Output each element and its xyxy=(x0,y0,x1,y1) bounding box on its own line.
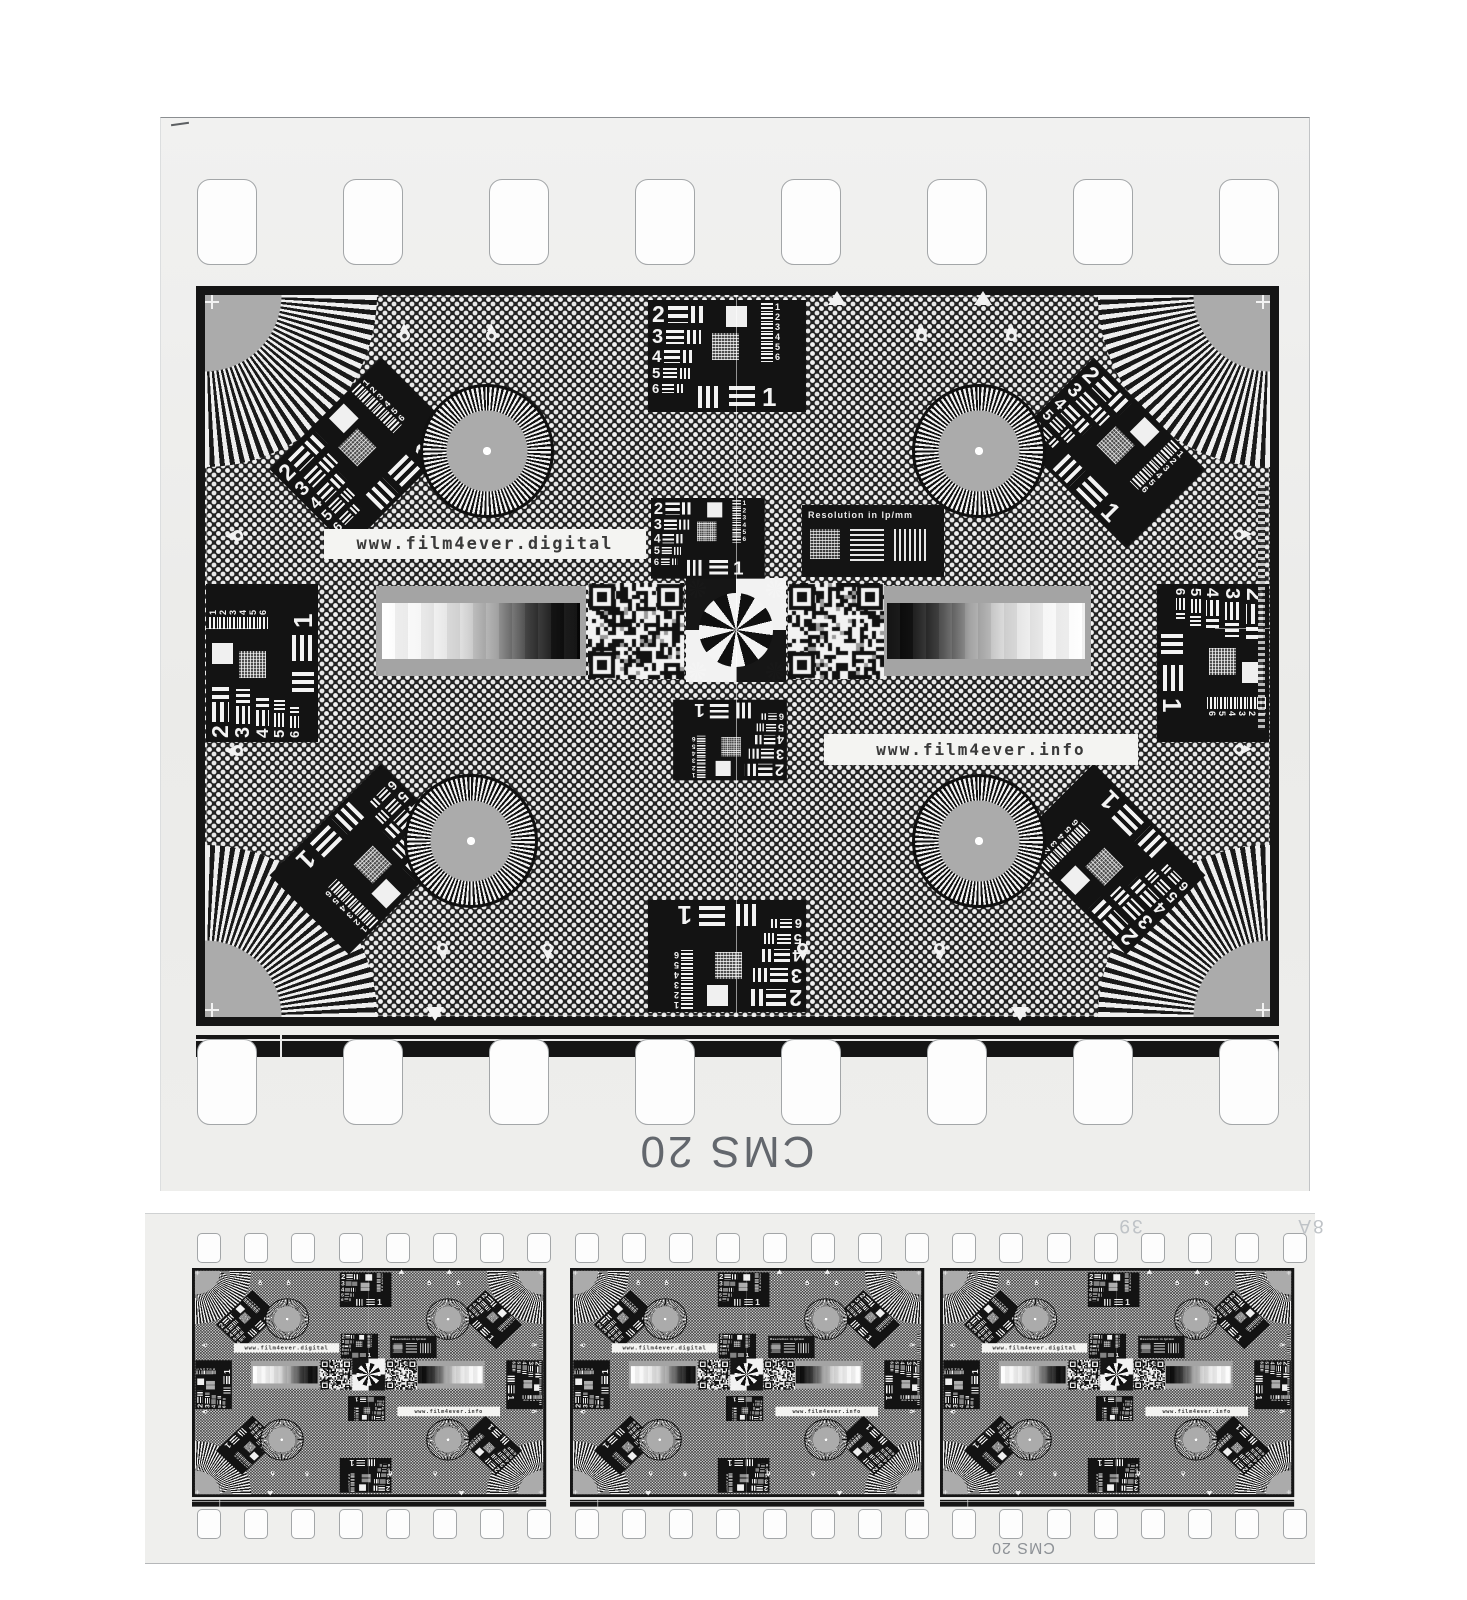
line-pattern xyxy=(1102,1274,1107,1279)
resolution-row-small: 5 xyxy=(1102,1409,1106,1411)
resolution-number: 5 xyxy=(778,722,784,733)
teardrop-marker-right xyxy=(1234,529,1252,541)
resolution-number: 4 xyxy=(1130,1407,1132,1411)
resolution-rows: 23456 xyxy=(1089,1273,1107,1301)
line-pattern xyxy=(1093,1293,1098,1296)
line-pattern xyxy=(996,1426,1000,1430)
line-pattern xyxy=(749,1416,753,1420)
line-pattern xyxy=(377,1289,381,1292)
mini-resolution-block: 234561234561 xyxy=(726,1396,763,1421)
line-pattern xyxy=(1219,1315,1223,1319)
qr-canvas xyxy=(698,1360,729,1390)
resolution-row-small: 5 xyxy=(1217,697,1226,716)
resolution-rows-small: 123456 xyxy=(674,950,693,1009)
resolution-number-small: 5 xyxy=(732,1409,733,1411)
line-pattern xyxy=(259,617,268,629)
line-pattern xyxy=(351,1335,355,1339)
line-pattern xyxy=(379,1400,382,1402)
sprocket-hole xyxy=(952,1509,976,1539)
resolution-row-small: 5 xyxy=(249,610,258,629)
resolution-number: 5 xyxy=(760,1403,762,1406)
resolution-unit-label: Resolution in lp/mm xyxy=(808,510,938,520)
sprocket-hole xyxy=(999,1509,1023,1539)
edge-arrow-bottom xyxy=(426,1007,444,1021)
line-pattern xyxy=(728,1340,731,1343)
qr-code-right xyxy=(386,1360,417,1390)
line-pattern xyxy=(900,1365,904,1370)
url-bar-info: www.film4ever.info xyxy=(775,1407,878,1417)
line-pattern xyxy=(732,1274,737,1279)
line-pattern xyxy=(729,1489,733,1492)
teardrop-marker-top xyxy=(1035,1279,1039,1285)
line-pattern xyxy=(351,1474,355,1477)
resolution-row-small: 5 xyxy=(348,1477,354,1480)
line-pattern xyxy=(356,1407,359,1409)
resolution-number-small: 6 xyxy=(775,353,780,362)
line-pattern xyxy=(1217,697,1226,709)
resolution-number-small: 5 xyxy=(348,1477,350,1480)
line-pattern xyxy=(886,1385,893,1393)
line-pattern xyxy=(757,1464,760,1467)
resolution-number-small: 5 xyxy=(1102,1409,1103,1411)
resolution-row-small: 2 xyxy=(674,990,693,999)
line-pattern xyxy=(218,1400,222,1404)
line-pattern xyxy=(961,1370,964,1374)
resolution-row-small: 2 xyxy=(732,1416,736,1418)
line-pattern xyxy=(663,534,675,543)
line-pattern xyxy=(236,706,250,724)
line-pattern xyxy=(229,1434,240,1445)
resolution-number-small: 1 xyxy=(348,1489,350,1492)
resolution-number: 3 xyxy=(1276,1361,1283,1364)
resolution-number: 6 xyxy=(654,557,659,566)
resolution-number: 2 xyxy=(196,1404,204,1408)
resolution-number-small: 6 xyxy=(674,950,679,959)
edge-arrow-bottom xyxy=(1011,1007,1029,1021)
resolution-row: 5 xyxy=(719,1293,737,1298)
sprocket-hole xyxy=(339,1233,363,1263)
line-pattern xyxy=(346,1282,352,1286)
resolution-row-small: 6 xyxy=(523,1395,526,1401)
resolution-row-small: 2 xyxy=(536,1395,539,1401)
line-pattern xyxy=(738,1397,744,1402)
sprocket-hole xyxy=(1235,1233,1259,1263)
line-pattern xyxy=(759,949,771,961)
white-reference-square xyxy=(1061,865,1091,895)
line-pattern xyxy=(380,1479,386,1483)
teardrop-marker-top xyxy=(916,323,928,341)
resolution-number-small: 4 xyxy=(732,1412,733,1414)
resolution-row: 3 xyxy=(1222,588,1242,643)
resolution-bottom-group: 1 xyxy=(727,1459,753,1466)
resolution-row: 4 xyxy=(1204,588,1221,643)
resolution-bottom-group: 1 xyxy=(971,1369,978,1393)
line-pattern xyxy=(591,1370,594,1374)
sprocket-hole xyxy=(811,1233,835,1263)
resolution-number: 4 xyxy=(900,1361,906,1364)
line-pattern xyxy=(697,757,706,763)
test-chart: 2345612345612345612345612345612345612345… xyxy=(192,1268,546,1497)
sprocket-hole xyxy=(763,1233,787,1263)
line-pattern xyxy=(1108,1397,1114,1402)
resolution-rows-small: 123456 xyxy=(497,1316,515,1333)
siemens-star-circle-4 xyxy=(804,1419,848,1460)
line-pattern xyxy=(734,1412,737,1414)
line-pattern xyxy=(1104,1299,1112,1306)
line-pattern xyxy=(590,1394,594,1398)
sprocket-hole xyxy=(197,1509,221,1539)
gear-flower xyxy=(378,1384,384,1390)
resolution-number-small: 2 xyxy=(726,1486,728,1489)
resolution-row: 3 xyxy=(654,517,693,531)
line-pattern xyxy=(218,1396,222,1399)
resolution-number-small: 5 xyxy=(354,1409,355,1411)
fine-pattern-square xyxy=(364,1408,370,1414)
resolution-number-small: 6 xyxy=(1249,1330,1252,1333)
resolution-unit-box: Resolution in lp/mm xyxy=(390,1336,436,1358)
sprocket-hole xyxy=(1219,179,1279,265)
white-reference-square xyxy=(740,1415,745,1420)
sprocket-hole xyxy=(1219,1039,1279,1125)
resolution-number-small: 2 xyxy=(219,610,228,615)
line-pattern xyxy=(764,933,774,944)
sprocket-hole xyxy=(1141,1233,1165,1263)
resolution-row-small: 3 xyxy=(732,1414,736,1416)
line-pattern xyxy=(723,1293,728,1296)
edge-arrow-top xyxy=(777,1270,783,1274)
frame-bottom-bar xyxy=(192,1500,546,1507)
resolution-number-small: 4 xyxy=(674,970,679,979)
line-pattern xyxy=(1108,1353,1114,1358)
line-pattern xyxy=(697,750,706,756)
line-pattern xyxy=(356,1414,359,1416)
resolution-number: 6 xyxy=(383,1400,385,1403)
line-pattern xyxy=(755,1289,759,1292)
qr-code-right xyxy=(788,583,884,679)
resolution-big-number: 1 xyxy=(1125,1299,1130,1306)
resolution-row: 2 xyxy=(745,762,784,779)
resolution-row-small: 6 xyxy=(901,1395,904,1401)
edge-block-left-middle: 234561234561 xyxy=(943,1360,980,1409)
resolution-row-small: 2 xyxy=(914,1395,917,1401)
fine-pattern-square xyxy=(584,1381,593,1389)
resolution-number-small: 4 xyxy=(1102,1412,1103,1414)
resolution-row: 5 xyxy=(749,1403,762,1406)
siemens-star-circle-2 xyxy=(426,1298,470,1339)
gradient-strip xyxy=(796,1366,861,1383)
resolution-number: 3 xyxy=(233,727,253,738)
sprocket-hole xyxy=(905,1509,929,1539)
resolution-rows: 23456 xyxy=(749,1400,762,1421)
resolution-number: 3 xyxy=(906,1361,913,1364)
sprocket-hole xyxy=(575,1233,599,1263)
resolution-number: 5 xyxy=(652,366,660,381)
center-cluster-bottom: 234561234561 xyxy=(1096,1396,1133,1421)
line-pattern xyxy=(697,743,706,749)
white-reference-square xyxy=(737,1484,744,1490)
resolution-row-small: 5 xyxy=(354,1409,358,1411)
line-pattern xyxy=(1093,1340,1097,1343)
resolution-number-small: 3 xyxy=(532,1400,535,1402)
resolution-big-number: 1 xyxy=(678,904,692,926)
resolution-rows-small: 123456 xyxy=(991,1296,1009,1313)
resolution-number-small: 6 xyxy=(1271,1400,1274,1402)
white-reference-square xyxy=(197,1378,204,1384)
line-pattern xyxy=(368,798,380,810)
resolution-number: 6 xyxy=(512,1361,516,1363)
line-pattern xyxy=(339,510,354,525)
line-pattern xyxy=(1099,1483,1103,1486)
resolution-number-small: 3 xyxy=(910,1400,913,1402)
resolution-row-small: 5 xyxy=(761,343,780,352)
edge-arrow-bottom xyxy=(459,1491,465,1495)
teardrop-marker-right xyxy=(1234,744,1252,756)
line-pattern xyxy=(756,724,763,732)
url-bar-info: www.film4ever.info xyxy=(397,1407,500,1417)
line-pattern xyxy=(734,1299,742,1306)
line-pattern xyxy=(1280,1395,1283,1399)
qr-canvas xyxy=(1134,1360,1165,1390)
resolution-row: 5 xyxy=(745,722,784,733)
sprocket-hole xyxy=(527,1509,551,1539)
line-pattern xyxy=(1225,602,1239,620)
line-pattern xyxy=(722,1349,725,1351)
center-cluster-top: 234561234561 xyxy=(651,498,765,579)
qr-canvas xyxy=(320,1360,351,1390)
line-pattern xyxy=(729,1483,733,1486)
line-pattern xyxy=(723,1288,728,1292)
resolution-bottom-group: 1 xyxy=(694,702,750,718)
resolution-bottom-group: 1 xyxy=(292,614,314,692)
fine-pattern-square xyxy=(206,1381,215,1389)
resolution-number-small: 4 xyxy=(529,1400,532,1402)
teardrop-marker-top xyxy=(636,1279,640,1285)
line-pattern xyxy=(780,919,792,928)
resolution-row-small: 6 xyxy=(961,1368,964,1374)
teardrop-marker-left xyxy=(201,1410,207,1414)
resolution-row: 3 xyxy=(233,683,253,738)
line-pattern xyxy=(697,764,706,770)
line-pattern xyxy=(223,1401,226,1405)
resolution-row: 2 xyxy=(747,986,802,1009)
teardrop-marker-bottom xyxy=(305,1471,309,1477)
line-pattern xyxy=(752,1407,755,1410)
resolution-rows-small: 123456 xyxy=(377,1273,383,1291)
line-pattern xyxy=(349,1345,352,1348)
resolution-number: 6 xyxy=(1089,1298,1091,1302)
resolution-number-small: 6 xyxy=(1102,1407,1103,1409)
line-pattern xyxy=(351,1477,355,1480)
line-pattern xyxy=(529,1395,532,1399)
line-pattern xyxy=(664,519,677,529)
resolution-rows-small: 123456 xyxy=(755,1273,761,1291)
teardrop-marker-bottom xyxy=(933,943,945,961)
resolution-number: 3 xyxy=(387,1478,391,1484)
line-pattern xyxy=(1168,1343,1179,1353)
resolution-number: 2 xyxy=(654,500,663,517)
resolution-number: 4 xyxy=(777,734,784,746)
resolution-rows: 23456 xyxy=(944,1391,974,1408)
sprocket-hole xyxy=(927,1039,987,1125)
resolution-bottom-group: 1 xyxy=(733,1397,751,1402)
teardrop-marker-right xyxy=(1279,1410,1285,1414)
edge-microtext-strip xyxy=(539,1330,541,1406)
line-pattern xyxy=(734,1416,737,1418)
resolution-row-small: 6 xyxy=(354,1407,358,1409)
resolution-number: 3 xyxy=(1135,1478,1139,1484)
siemens-star-circle-4 xyxy=(912,774,1046,908)
teardrop-marker-bottom xyxy=(388,1471,392,1477)
line-pattern xyxy=(761,353,773,362)
line-pattern xyxy=(242,1335,246,1339)
resolution-row-small: 2 xyxy=(692,764,706,770)
resolution-row: 5 xyxy=(652,366,707,381)
sprocket-hole xyxy=(635,179,695,265)
resolution-row-small: 6 xyxy=(1271,1395,1274,1401)
line-pattern xyxy=(769,919,777,928)
line-pattern xyxy=(1127,1400,1130,1402)
white-reference-square xyxy=(212,643,233,664)
sprocket-hole xyxy=(386,1233,410,1263)
resolution-rows-small: 123456 xyxy=(1125,1273,1131,1291)
line-pattern xyxy=(575,1391,580,1396)
teardrop-marker-left xyxy=(579,1343,585,1347)
line-pattern xyxy=(1161,634,1183,658)
resolution-number-small: 5 xyxy=(526,1400,529,1402)
line-pattern xyxy=(1090,406,1110,426)
line-pattern xyxy=(728,1293,731,1296)
resolution-number: 3 xyxy=(1222,588,1242,599)
resolution-rows: 23456 xyxy=(371,1400,384,1421)
resolution-rows: 23456 xyxy=(1120,1463,1138,1491)
mini-resolution-block: 234561234561 xyxy=(348,1396,385,1421)
teardrop-marker-top xyxy=(287,1279,291,1285)
line-pattern xyxy=(662,547,672,555)
resolution-number-small: 3 xyxy=(1096,1483,1098,1486)
resolution-big-number: 1 xyxy=(971,1369,978,1373)
resolution-row: 4 xyxy=(1089,1287,1107,1292)
line-pattern xyxy=(760,713,766,720)
edge-block-right-middle: 234561234561 xyxy=(1254,1360,1291,1409)
resolution-number-small: 5 xyxy=(1274,1400,1277,1402)
line-pattern xyxy=(1129,1473,1134,1477)
line-pattern xyxy=(205,1398,210,1404)
sprocket-hole xyxy=(480,1509,504,1539)
resolution-number: 6 xyxy=(222,1406,226,1408)
sprocket-hole xyxy=(781,1039,841,1125)
resolution-rows-small: 123456 xyxy=(875,1316,893,1333)
line-pattern xyxy=(761,1464,765,1467)
line-pattern xyxy=(756,1468,759,1471)
resolution-number-small: 5 xyxy=(726,1477,728,1480)
resolution-row-small: 5 xyxy=(692,743,706,749)
resolution-row-small: 2 xyxy=(1102,1416,1106,1418)
line-pattern xyxy=(223,1376,230,1384)
line-pattern xyxy=(1207,697,1216,709)
resolution-row-small: 4 xyxy=(674,970,693,979)
line-pattern xyxy=(348,1349,350,1351)
resolution-row-small: 4 xyxy=(354,1412,358,1414)
resolution-row-small: 6 xyxy=(1125,1289,1131,1292)
line-pattern xyxy=(723,1345,727,1348)
resolution-number-small: 1 xyxy=(209,610,218,615)
gear-flower xyxy=(1101,1359,1107,1365)
line-pattern xyxy=(377,1411,381,1414)
resolution-number-small: 2 xyxy=(732,1416,733,1418)
line-pattern xyxy=(697,772,706,778)
resolution-number: 6 xyxy=(779,712,784,721)
line-pattern xyxy=(601,1398,604,1400)
sprocket-hole xyxy=(1141,1509,1165,1539)
resolution-number: 6 xyxy=(341,1298,343,1302)
line-pattern xyxy=(379,1464,382,1467)
line-pattern xyxy=(1274,1395,1277,1399)
resolution-row: 5 xyxy=(1264,1361,1269,1378)
resolution-number: 2 xyxy=(944,1404,952,1408)
line-pattern xyxy=(371,1416,375,1420)
edge-arrow-top xyxy=(399,1270,405,1274)
line-pattern xyxy=(747,989,763,1006)
line-pattern xyxy=(1061,429,1076,444)
white-reference-square xyxy=(707,502,722,517)
resolution-rows-small: 123456 xyxy=(761,303,780,362)
resolution-number: 6 xyxy=(1260,1361,1264,1363)
resolution-rows-small: 123456 xyxy=(209,610,268,629)
resolution-row-small: 5 xyxy=(674,960,693,969)
resolution-number: 6 xyxy=(1174,588,1187,595)
white-reference-square xyxy=(737,1335,742,1340)
resolution-row-small: 3 xyxy=(692,757,706,763)
line-pattern xyxy=(350,1293,353,1296)
resolution-row: 3 xyxy=(1276,1361,1283,1378)
resolution-number: 4 xyxy=(522,1361,528,1364)
resolution-row: 5 xyxy=(371,1403,384,1406)
edge-block-right-middle: 234561234561 xyxy=(1157,584,1269,742)
resolution-big-number: 1 xyxy=(727,1459,732,1466)
resolution-number-small: 2 xyxy=(536,1400,539,1402)
line-pattern xyxy=(666,330,684,344)
line-pattern xyxy=(1237,697,1246,709)
line-pattern xyxy=(583,1393,588,1397)
line-pattern xyxy=(378,1403,381,1405)
line-pattern xyxy=(292,635,314,661)
line-pattern xyxy=(758,1479,764,1483)
resolution-number: 3 xyxy=(765,1478,769,1484)
qr-code-left xyxy=(588,583,684,679)
resolution-rows: 23456 xyxy=(720,1334,733,1355)
resolution-number: 6 xyxy=(388,1463,390,1467)
line-pattern xyxy=(677,534,686,543)
line-pattern xyxy=(734,1418,737,1420)
qr-code-right xyxy=(764,1360,795,1390)
resolution-row: 2 xyxy=(371,1415,384,1420)
resolution-row: 4 xyxy=(654,533,693,545)
line-pattern xyxy=(596,1400,600,1404)
line-pattern xyxy=(729,386,755,408)
grayscale-wedge-right xyxy=(416,1361,485,1389)
resolution-number-small: 6 xyxy=(523,1400,526,1402)
resolution-bottom-group: 1 xyxy=(356,1299,382,1306)
resolution-number: 3 xyxy=(528,1361,535,1364)
resolution-row-small: 1 xyxy=(209,610,218,629)
line-pattern xyxy=(751,1411,754,1414)
center-cluster-bottom: 234561234561 xyxy=(726,1396,763,1421)
resolution-number: 5 xyxy=(1130,1403,1132,1406)
resolution-number-small: 6 xyxy=(732,1407,733,1409)
resolution-number: 3 xyxy=(1130,1411,1133,1415)
resolution-number-small: 3 xyxy=(726,1483,728,1486)
resolution-row-small: 2 xyxy=(1096,1486,1102,1489)
